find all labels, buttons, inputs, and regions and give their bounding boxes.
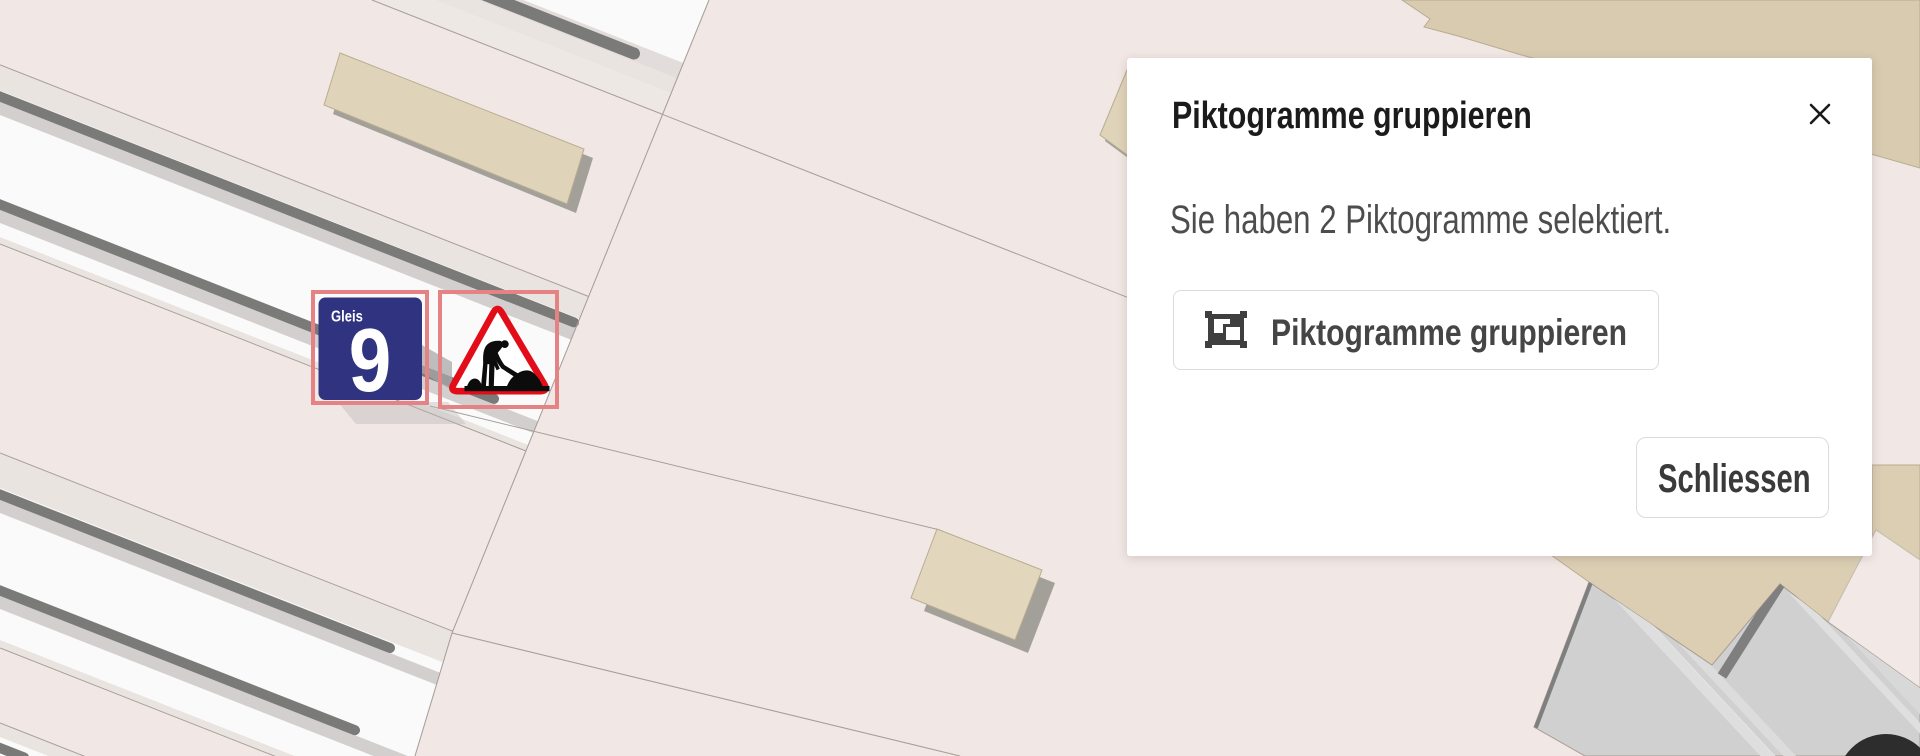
svg-text:9: 9 [349, 309, 392, 410]
